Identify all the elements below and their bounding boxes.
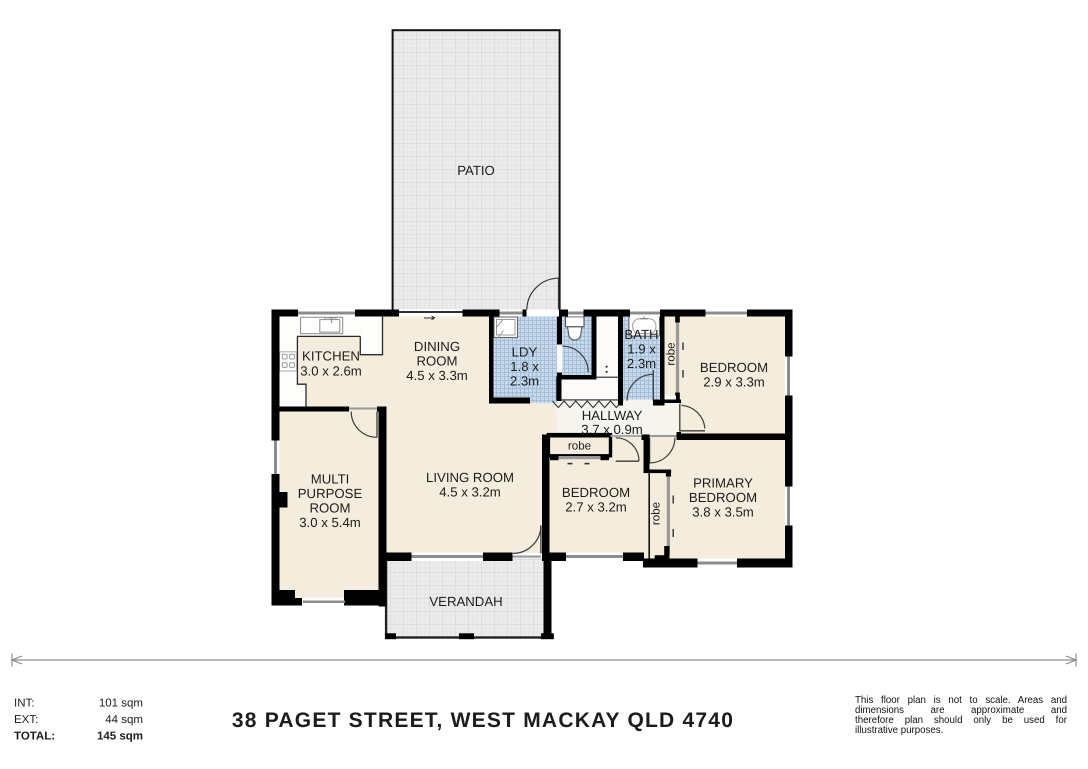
svg-text:PATIO: PATIO <box>457 163 495 178</box>
svg-text:2.3m: 2.3m <box>510 374 539 389</box>
svg-text:3.0 x 5.4m: 3.0 x 5.4m <box>299 515 361 530</box>
svg-text:1.9 x: 1.9 x <box>627 342 656 357</box>
svg-text:2.3m: 2.3m <box>627 356 656 371</box>
svg-text:robe: robe <box>665 342 678 365</box>
svg-text:3.0 x 2.6m: 3.0 x 2.6m <box>300 364 362 379</box>
svg-text:PRIMARY: PRIMARY <box>693 476 753 491</box>
svg-text:DINING: DINING <box>414 339 460 354</box>
svg-text:BATH: BATH <box>624 327 658 342</box>
svg-text:HALLWAY: HALLWAY <box>582 408 643 423</box>
svg-text:KITCHEN: KITCHEN <box>302 349 360 364</box>
svg-text:BEDROOM: BEDROOM <box>562 485 630 500</box>
svg-text:2.7 x 3.2m: 2.7 x 3.2m <box>565 500 627 515</box>
svg-text:LDY: LDY <box>512 345 538 360</box>
svg-text:MULTI: MULTI <box>311 472 350 487</box>
svg-text:robe: robe <box>650 502 663 525</box>
svg-text:BEDROOM: BEDROOM <box>689 490 757 505</box>
svg-text:BEDROOM: BEDROOM <box>700 360 768 375</box>
svg-text:ROOM: ROOM <box>416 354 457 369</box>
svg-text:INT:: INT: <box>14 698 34 710</box>
svg-text:TOTAL:: TOTAL: <box>14 731 55 743</box>
svg-text:PURPOSE: PURPOSE <box>298 486 363 501</box>
svg-text:VERANDAH: VERANDAH <box>429 594 502 609</box>
svg-text:EXT:: EXT: <box>14 714 38 726</box>
svg-text:1.8 x: 1.8 x <box>510 359 539 374</box>
svg-text:4.5 x 3.3m: 4.5 x 3.3m <box>406 368 468 383</box>
svg-text:44 sqm: 44 sqm <box>105 714 143 726</box>
svg-text:4.5 x 3.2m: 4.5 x 3.2m <box>439 485 501 500</box>
svg-text:101 sqm: 101 sqm <box>99 698 143 710</box>
svg-text:3.8 x 3.5m: 3.8 x 3.5m <box>692 505 754 520</box>
svg-text:38 PAGET STREET, WEST MACKAY Q: 38 PAGET STREET, WEST MACKAY QLD 4740 <box>232 709 734 732</box>
svg-text:LIVING ROOM: LIVING ROOM <box>426 470 514 485</box>
svg-text:robe: robe <box>568 440 591 453</box>
svg-text:2.9 x 3.3m: 2.9 x 3.3m <box>703 375 765 390</box>
svg-text:ROOM: ROOM <box>309 501 350 516</box>
svg-text:145 sqm: 145 sqm <box>97 731 143 743</box>
